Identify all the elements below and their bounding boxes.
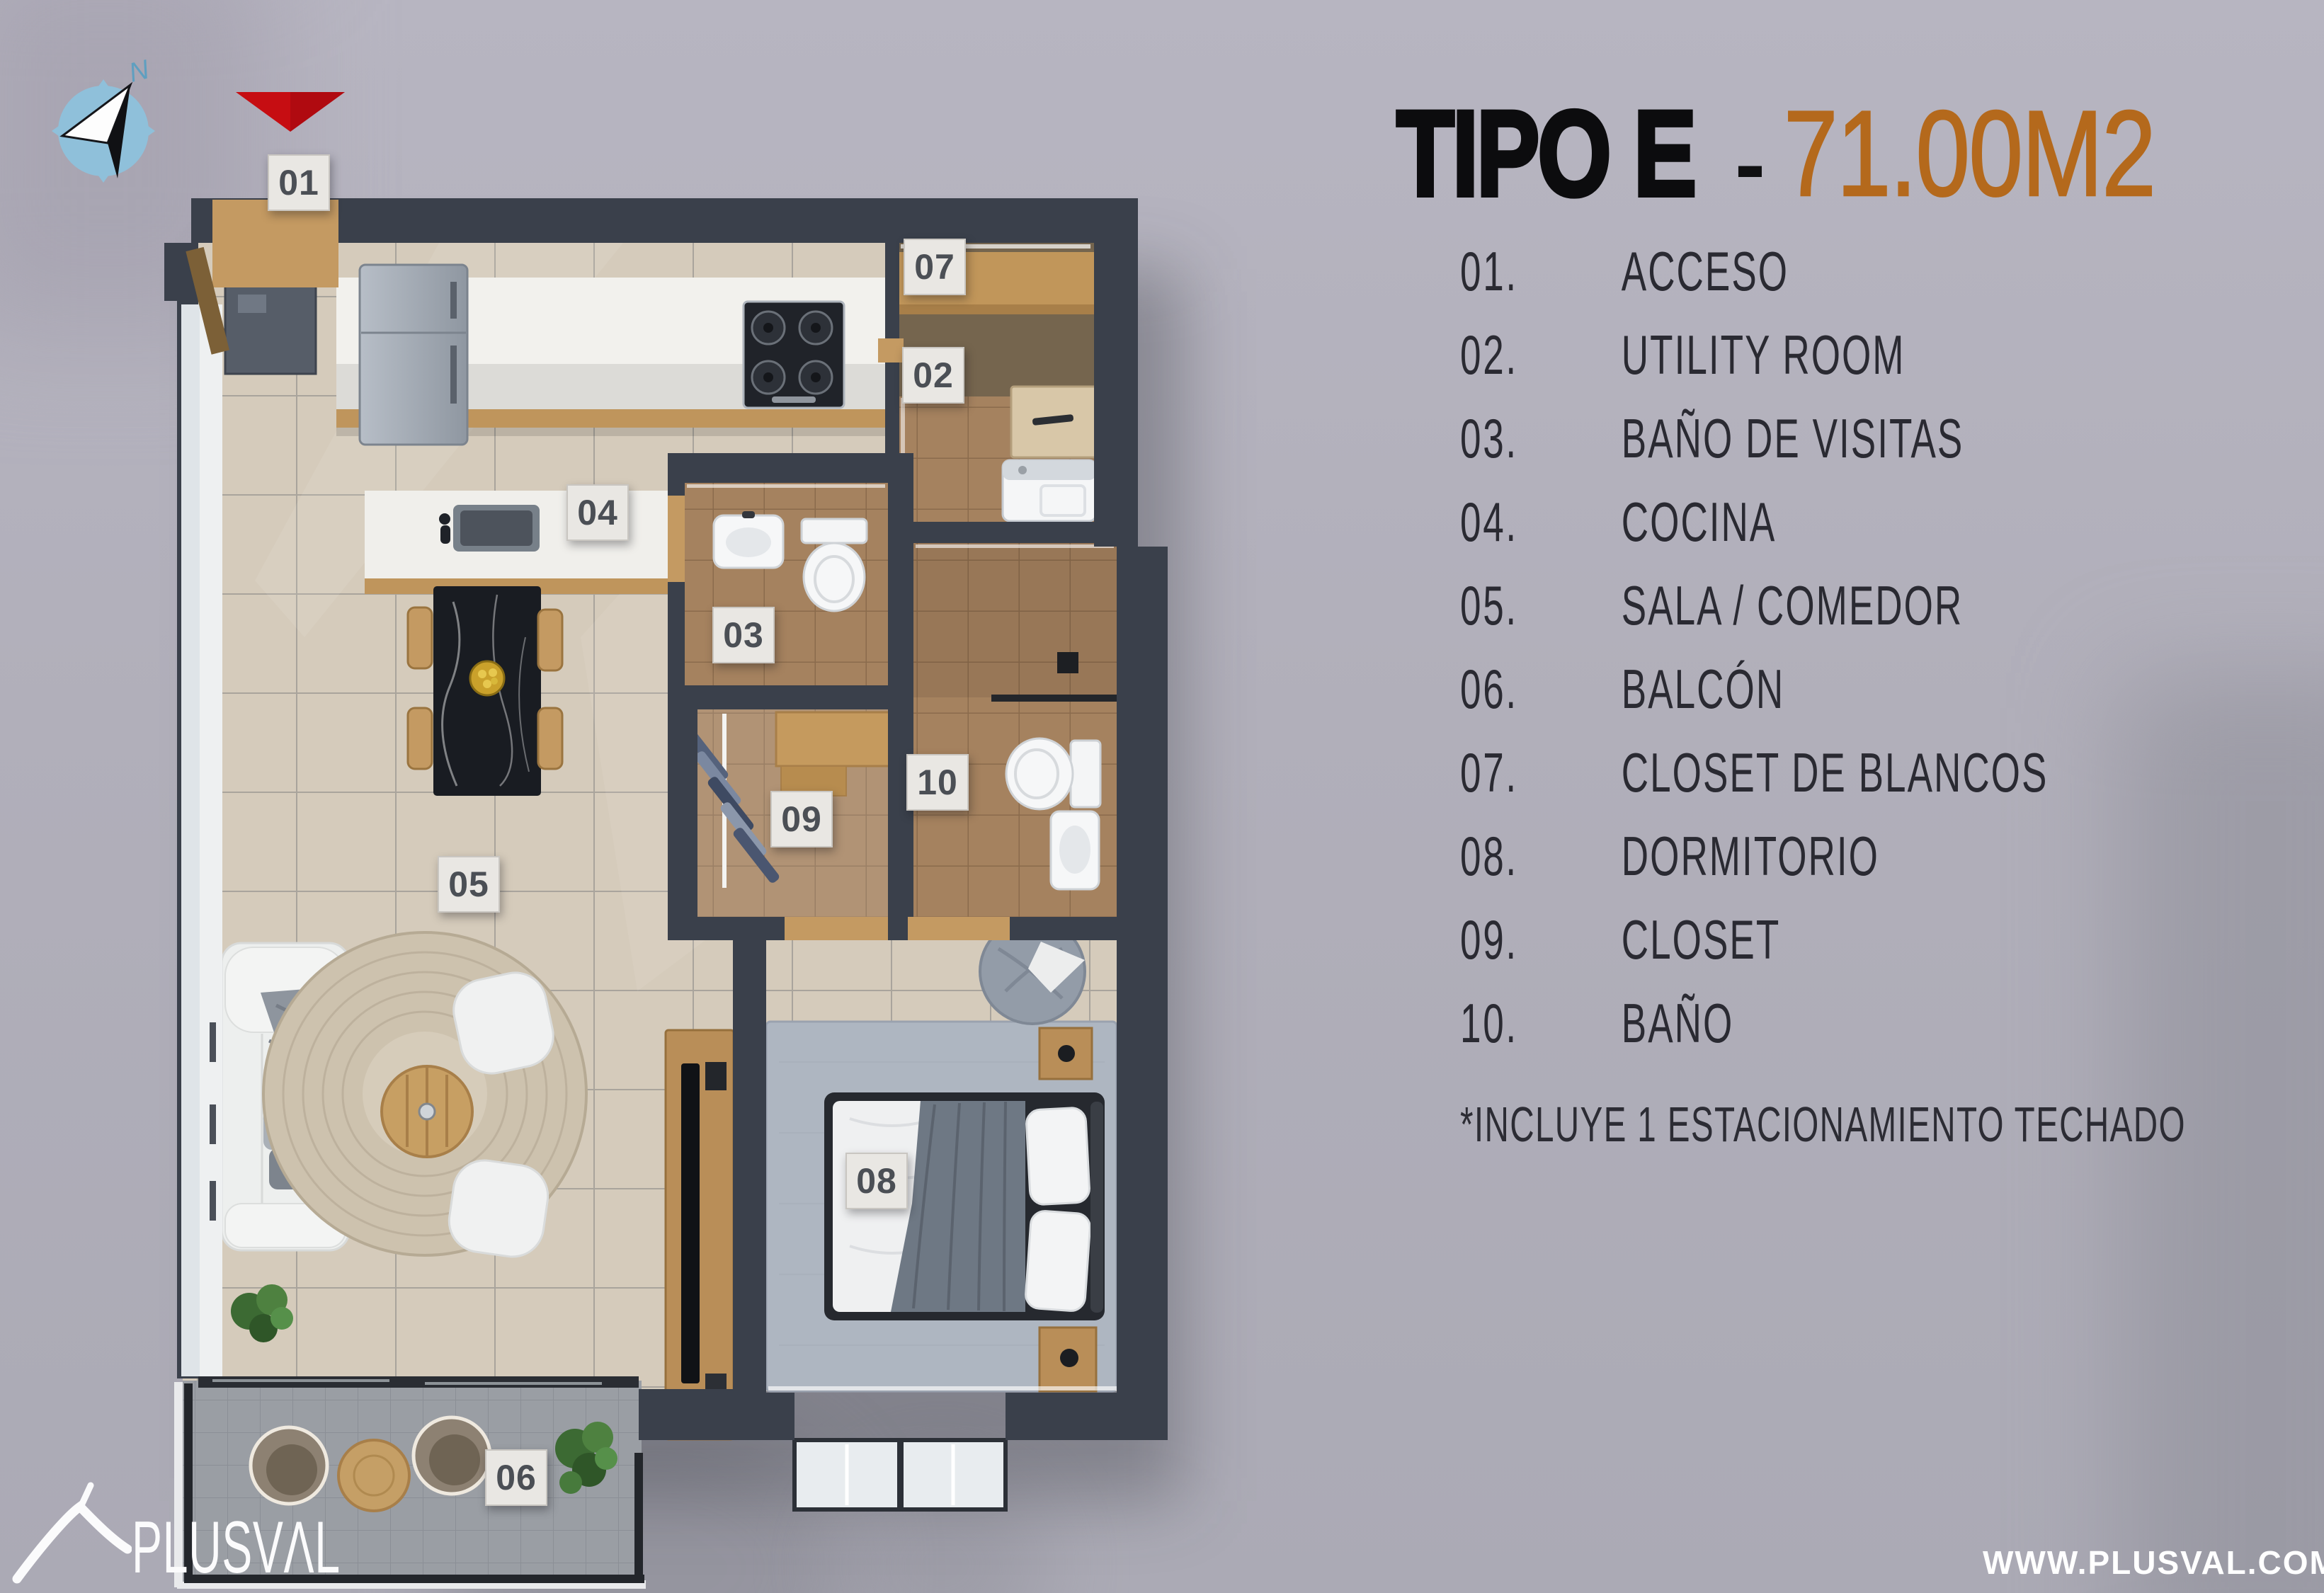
compass-icon: N bbox=[52, 55, 155, 183]
bathroom-sink bbox=[1051, 811, 1099, 889]
tv-screen bbox=[681, 1063, 700, 1383]
washing-machine bbox=[1003, 460, 1096, 521]
legend-num: 05. bbox=[1460, 573, 1622, 638]
legend-label: BALCÓN bbox=[1622, 657, 1784, 721]
fridge bbox=[360, 265, 467, 445]
legend-row: 04. COCINA bbox=[1460, 490, 2048, 573]
legend-num: 03. bbox=[1460, 406, 1622, 471]
legend-label: ACCESO bbox=[1622, 239, 1789, 304]
room-chip-04: 04 bbox=[566, 484, 629, 541]
room-chip-02: 02 bbox=[902, 347, 964, 404]
toilet bbox=[802, 519, 867, 611]
parking-note: *INCLUYE 1 ESTACIONAMIENTO TECHADO bbox=[1460, 1096, 2186, 1153]
legend-row: 07. CLOSET DE BLANCOS bbox=[1460, 741, 2048, 824]
legend-num: 09. bbox=[1460, 908, 1622, 972]
legend-row: 03. BAÑO DE VISITAS bbox=[1460, 406, 2048, 490]
room-chip-05: 05 bbox=[438, 856, 500, 913]
utility-cabinet bbox=[1011, 387, 1100, 457]
room-chip-10: 10 bbox=[906, 754, 969, 811]
website-url: WWW.PLUSVAL.COM.DO bbox=[1983, 1543, 2324, 1582]
compass-north-label: N bbox=[126, 55, 152, 88]
legend-label: COCINA bbox=[1622, 490, 1777, 554]
bathroom-sink bbox=[714, 511, 783, 568]
title-separator: - bbox=[1716, 110, 1784, 217]
legend-num: 01. bbox=[1460, 239, 1622, 304]
room-legend: 01. ACCESO 02. UTILITY ROOM 03. BAÑO DE … bbox=[1460, 239, 2324, 1075]
brand-logo: PLUSVΛL bbox=[11, 1478, 468, 1585]
room-chip-08: 08 bbox=[845, 1153, 908, 1209]
speaker bbox=[705, 1062, 727, 1090]
floorplan-slide: N 01 02 03 04 05 06 07 08 09 10 TIPO E -… bbox=[0, 0, 2324, 1593]
legend-label: SALA / COMEDOR bbox=[1622, 573, 1963, 638]
fruit-bowl bbox=[470, 661, 504, 695]
room-chip-07: 07 bbox=[904, 239, 966, 295]
entry-floor bbox=[212, 200, 338, 287]
legend-row: 08. DORMITORIO bbox=[1460, 824, 2048, 908]
legend-row: 01. ACCESO bbox=[1460, 239, 2048, 323]
entry-marker-triangle bbox=[236, 92, 345, 132]
entry-cabinet bbox=[225, 282, 316, 374]
page-title: TIPO E - 71.00M2 bbox=[1396, 84, 2248, 224]
legend-row: 09. CLOSET bbox=[1460, 908, 2048, 991]
pillow bbox=[1025, 1210, 1090, 1312]
pillow bbox=[1026, 1107, 1090, 1205]
window-wall bbox=[177, 301, 222, 1378]
room-chip-06: 06 bbox=[485, 1449, 547, 1506]
title-type: TIPO E bbox=[1396, 84, 1694, 224]
legend-row: 02. UTILITY ROOM bbox=[1460, 323, 2048, 406]
legend-label: UTILITY ROOM bbox=[1622, 323, 1906, 387]
legend-num: 08. bbox=[1460, 824, 1622, 889]
bedroom-window bbox=[794, 1440, 1006, 1509]
legend-num: 02. bbox=[1460, 323, 1622, 387]
legend-label: DORMITORIO bbox=[1622, 824, 1879, 889]
legend-label: CLOSET bbox=[1622, 908, 1780, 972]
legend-num: 06. bbox=[1460, 657, 1622, 721]
legend-label: BAÑO DE VISITAS bbox=[1622, 406, 1964, 471]
room-chip-01: 01 bbox=[268, 154, 330, 211]
tv-console bbox=[666, 1030, 734, 1439]
stove bbox=[744, 302, 844, 408]
legend-row: 05. SALA / COMEDOR bbox=[1460, 573, 2048, 657]
headboard bbox=[1090, 1102, 1103, 1313]
dining-table bbox=[433, 586, 541, 796]
coffee-table bbox=[382, 1066, 472, 1157]
legend-num: 10. bbox=[1460, 991, 1622, 1056]
brand-roof-icon bbox=[11, 1478, 132, 1585]
room-chip-03: 03 bbox=[712, 607, 775, 663]
legend-num: 07. bbox=[1460, 741, 1622, 805]
legend-num: 04. bbox=[1460, 490, 1622, 554]
toilet bbox=[1006, 738, 1100, 809]
title-area: 71.00M2 bbox=[1784, 84, 2155, 224]
legend-row: 06. BALCÓN bbox=[1460, 657, 2048, 741]
legend-label: CLOSET DE BLANCOS bbox=[1622, 741, 2049, 805]
room-chip-09: 09 bbox=[770, 791, 833, 847]
brand-name: PLUSVΛL bbox=[132, 1511, 341, 1585]
legend-row: 10. BAÑO bbox=[1460, 991, 2048, 1075]
balcony-rail bbox=[634, 1453, 643, 1583]
led-edge bbox=[768, 1386, 1117, 1391]
legend-label: BAÑO bbox=[1622, 991, 1733, 1056]
